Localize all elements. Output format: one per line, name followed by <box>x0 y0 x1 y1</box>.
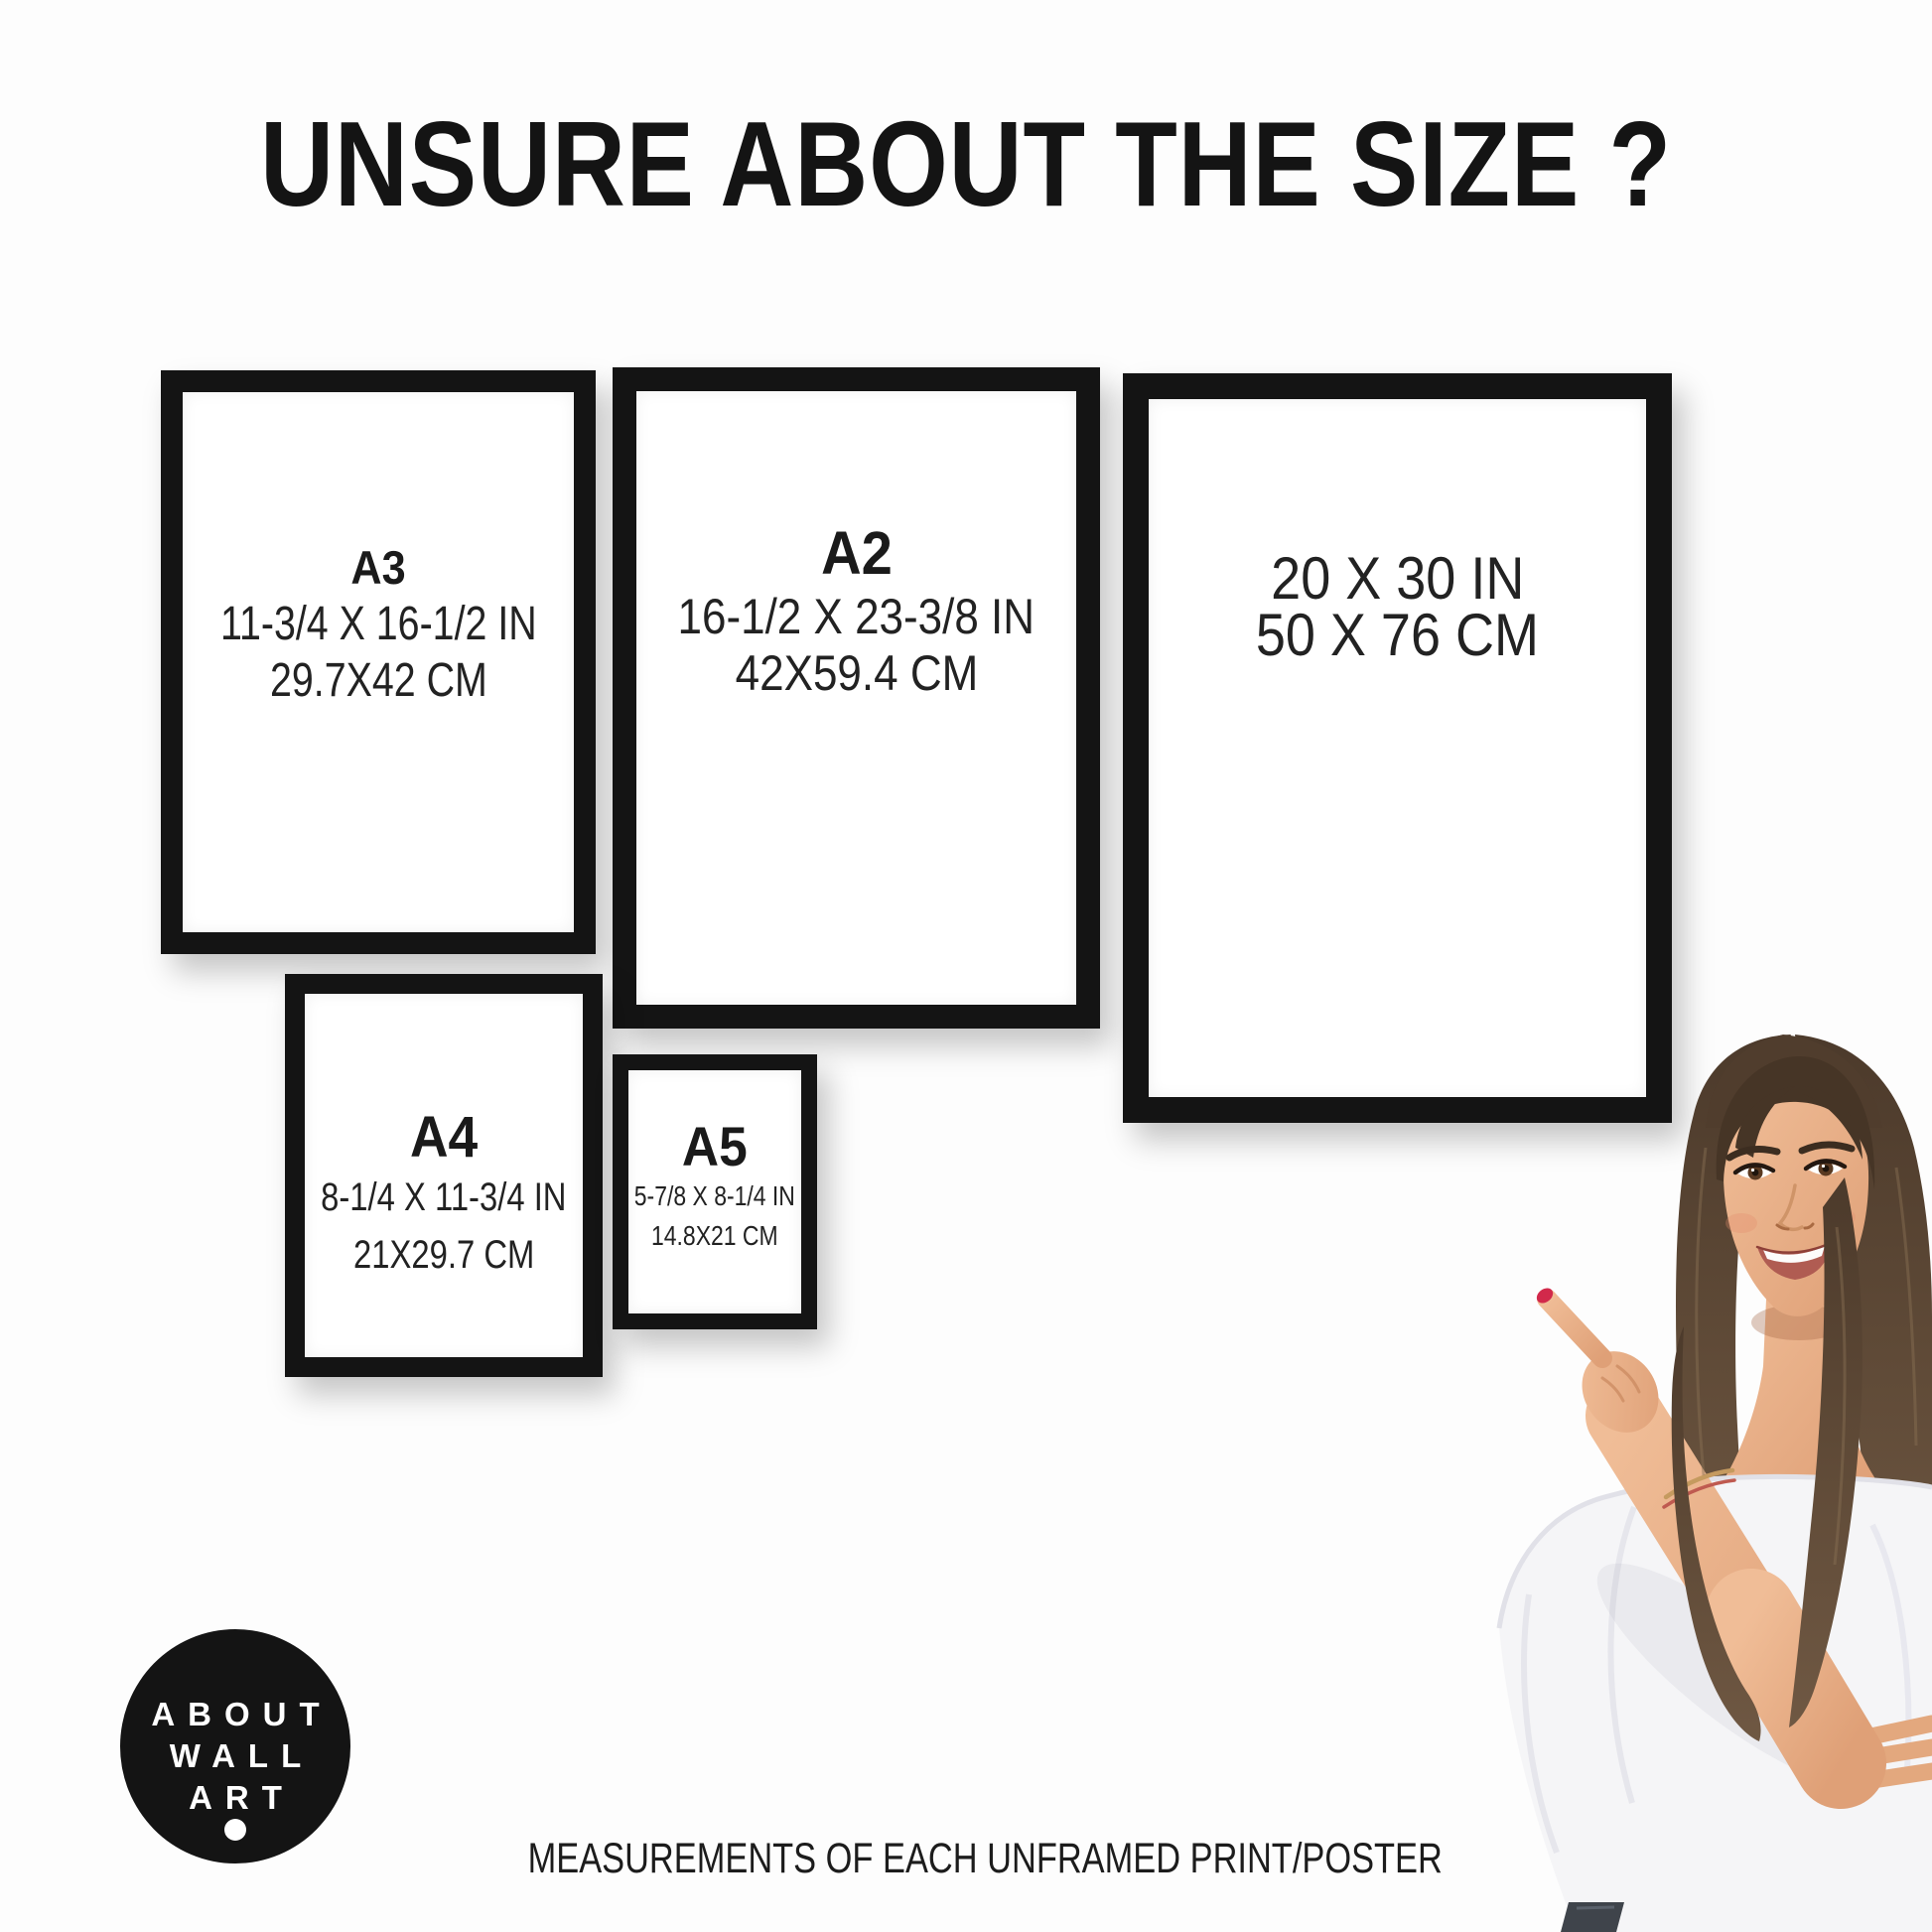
brand-logo-line-3: ART <box>176 1777 295 1819</box>
frame-a4-inches: 8-1/4 X 11-3/4 IN <box>321 1174 566 1220</box>
frame-a3-cm: 29.7X42 CM <box>270 652 487 709</box>
woman-pointing-photo <box>1485 1029 1932 1932</box>
frame-a2-label: A2 <box>821 517 893 589</box>
brand-logo-line-1: ABOUT <box>138 1694 332 1735</box>
frame-a5-inches: 5-7/8 X 8-1/4 IN <box>634 1177 795 1215</box>
frame-a3: A3 11-3/4 X 16-1/2 IN 29.7X42 CM <box>161 370 596 954</box>
frame-a5-label: A5 <box>682 1116 748 1177</box>
footer-caption: MEASUREMENTS OF EACH UNFRAMED PRINT/POST… <box>528 1836 1256 1882</box>
frame-a2-cm: 42X59.4 CM <box>735 645 978 702</box>
page-title: UNSURE ABOUT THE SIZE ? <box>155 103 1778 224</box>
woman-jeans <box>1561 1902 1624 1932</box>
size-guide-poster: UNSURE ABOUT THE SIZE ? A3 11-3/4 X 16-1… <box>0 0 1932 1932</box>
brand-logo-dot-icon <box>224 1819 246 1841</box>
frame-a4-label: A4 <box>410 1105 478 1171</box>
index-finger <box>1547 1299 1602 1358</box>
frame-a2-inches: 16-1/2 X 23-3/8 IN <box>678 589 1035 645</box>
frame-a5-cm: 14.8X21 CM <box>651 1217 778 1255</box>
brand-logo-line-2: WALL <box>157 1735 314 1777</box>
frame-a2: A2 16-1/2 X 23-3/8 IN 42X59.4 CM <box>613 367 1100 1029</box>
frame-a3-label: A3 <box>350 539 405 596</box>
frame-20x30-inches: 20 X 30 IN <box>1271 550 1524 607</box>
frame-20x30: 20 X 30 IN 50 X 76 CM <box>1123 373 1672 1123</box>
blush-left <box>1725 1213 1757 1233</box>
frame-a4: A4 8-1/4 X 11-3/4 IN 21X29.7 CM <box>285 974 603 1377</box>
frame-a4-cm: 21X29.7 CM <box>353 1232 534 1278</box>
brand-logo: ABOUT WALL ART <box>120 1629 350 1863</box>
frame-a5: A5 5-7/8 X 8-1/4 IN 14.8X21 CM <box>613 1054 817 1329</box>
frame-20x30-cm: 50 X 76 CM <box>1256 607 1539 663</box>
frame-a3-inches: 11-3/4 X 16-1/2 IN <box>220 596 537 652</box>
